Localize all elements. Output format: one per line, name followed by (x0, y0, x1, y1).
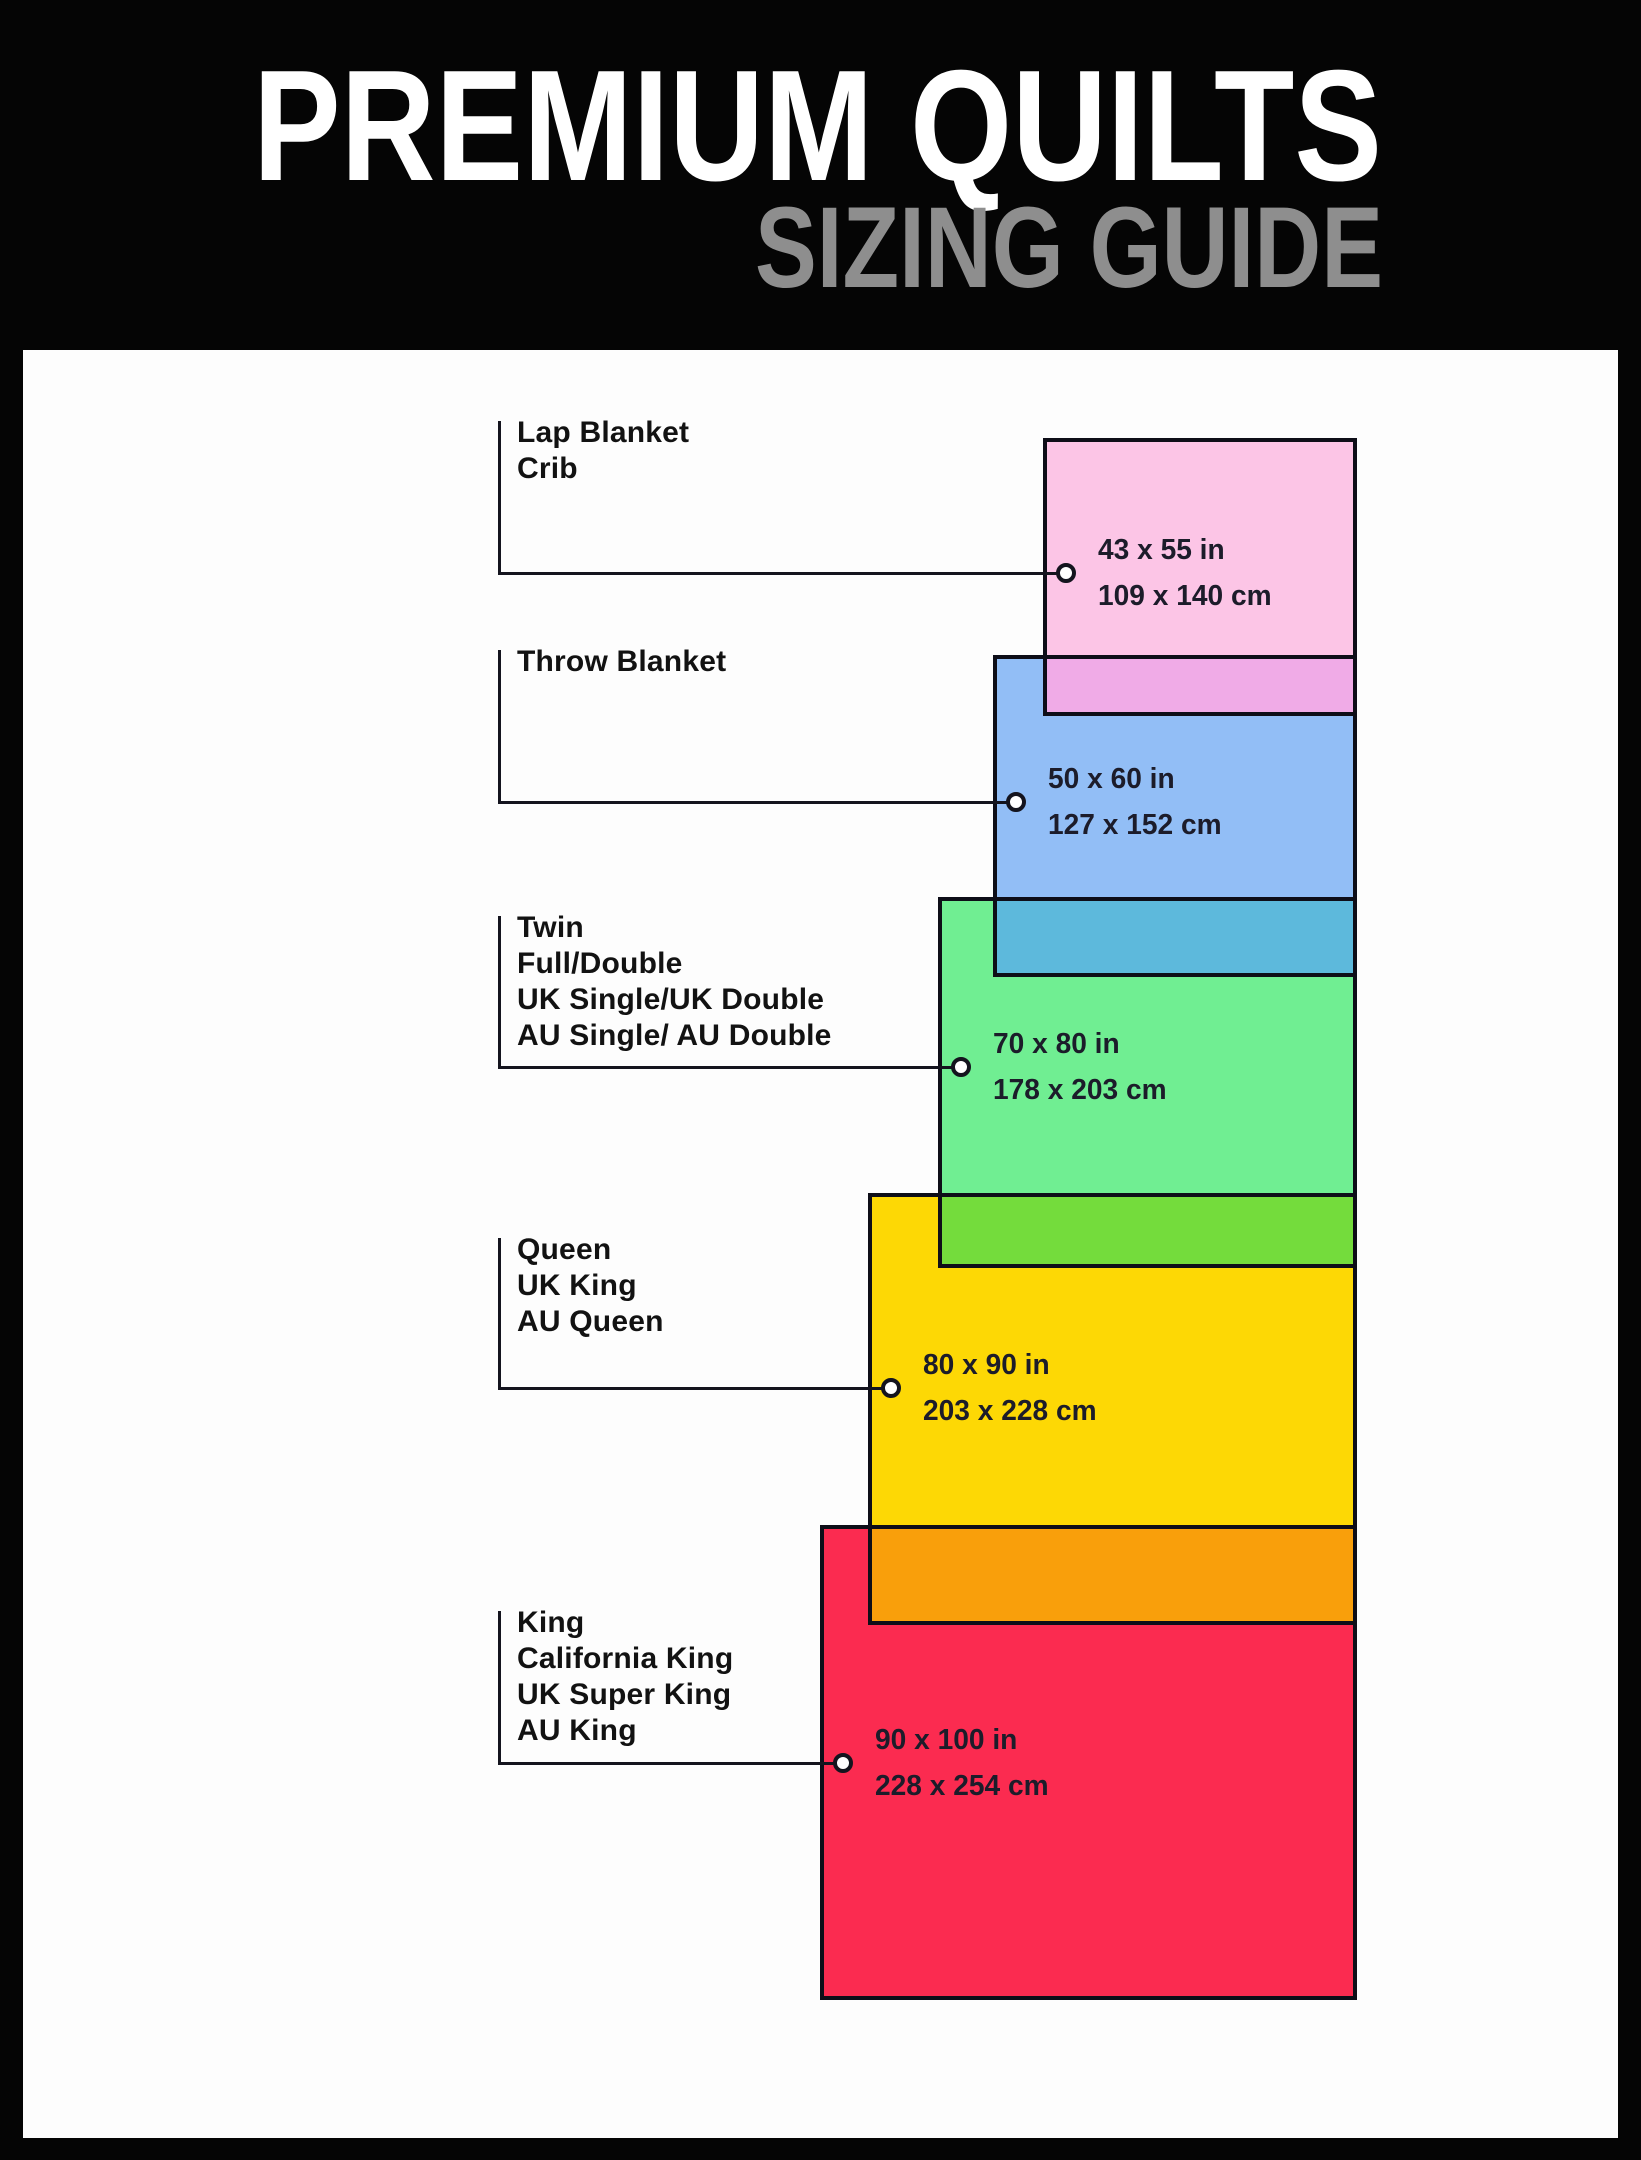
size-dims-cm: 228 x 254 cm (875, 1763, 1049, 1809)
connector-line-v-throw-blanket (498, 650, 501, 803)
size-label-line: UK Single/UK Double (517, 982, 832, 1018)
connector-line-h-twin-full-double (498, 1066, 961, 1069)
connector-line-h-lap-blanket-crib (498, 572, 1066, 575)
size-dims-cm: 127 x 152 cm (1048, 802, 1222, 848)
connector-line-h-king (498, 1762, 843, 1765)
connector-line-v-king (498, 1611, 501, 1764)
size-dims-inches: 50 x 60 in (1048, 756, 1222, 802)
connector-dot-throw-blanket (1006, 792, 1026, 812)
size-label-line: Queen (517, 1232, 664, 1268)
connector-dot-queen (881, 1378, 901, 1398)
connector-line-v-twin-full-double (498, 916, 501, 1068)
size-label-lap-blanket-crib: Lap BlanketCrib (517, 415, 689, 487)
connector-line-v-queen (498, 1238, 501, 1389)
size-label-line: Throw Blanket (517, 644, 726, 680)
size-dims-cm: 109 x 140 cm (1098, 573, 1272, 619)
connector-line-h-queen (498, 1387, 891, 1390)
size-label-line: AU King (517, 1713, 733, 1749)
size-dims-inches: 90 x 100 in (875, 1717, 1049, 1763)
size-label-line: Full/Double (517, 946, 832, 982)
size-dims-lap-blanket-crib: 43 x 55 in109 x 140 cm (1098, 527, 1272, 619)
size-label-line: King (517, 1605, 733, 1641)
size-label-line: AU Queen (517, 1304, 664, 1340)
connector-line-v-lap-blanket-crib (498, 421, 501, 574)
connector-dot-king (833, 1753, 853, 1773)
size-dims-twin-full-double: 70 x 80 in178 x 203 cm (993, 1021, 1167, 1113)
size-label-line: Lap Blanket (517, 415, 689, 451)
size-label-line: Crib (517, 451, 689, 487)
connector-dot-lap-blanket-crib (1056, 563, 1076, 583)
size-label-queen: QueenUK KingAU Queen (517, 1232, 664, 1340)
sizing-guide-page: PREMIUM QUILTS SIZING GUIDE Lap BlanketC… (0, 0, 1641, 2160)
size-diagram: Lap BlanketCrib43 x 55 in109 x 140 cmThr… (0, 0, 1641, 2160)
size-label-king: KingCalifornia KingUK Super KingAU King (517, 1605, 733, 1749)
size-dims-inches: 43 x 55 in (1098, 527, 1272, 573)
connector-line-h-throw-blanket (498, 801, 1016, 804)
size-label-line: UK Super King (517, 1677, 733, 1713)
size-dims-cm: 178 x 203 cm (993, 1067, 1167, 1113)
size-dims-king: 90 x 100 in228 x 254 cm (875, 1717, 1049, 1809)
size-label-twin-full-double: TwinFull/DoubleUK Single/UK DoubleAU Sin… (517, 910, 832, 1054)
size-dims-queen: 80 x 90 in203 x 228 cm (923, 1342, 1097, 1434)
size-label-line: UK King (517, 1268, 664, 1304)
size-label-line: California King (517, 1641, 733, 1677)
size-dims-throw-blanket: 50 x 60 in127 x 152 cm (1048, 756, 1222, 848)
connector-dot-twin-full-double (951, 1057, 971, 1077)
size-dims-cm: 203 x 228 cm (923, 1388, 1097, 1434)
size-dims-inches: 80 x 90 in (923, 1342, 1097, 1388)
size-label-line: Twin (517, 910, 832, 946)
size-dims-inches: 70 x 80 in (993, 1021, 1167, 1067)
size-label-line: AU Single/ AU Double (517, 1018, 832, 1054)
size-label-throw-blanket: Throw Blanket (517, 644, 726, 680)
